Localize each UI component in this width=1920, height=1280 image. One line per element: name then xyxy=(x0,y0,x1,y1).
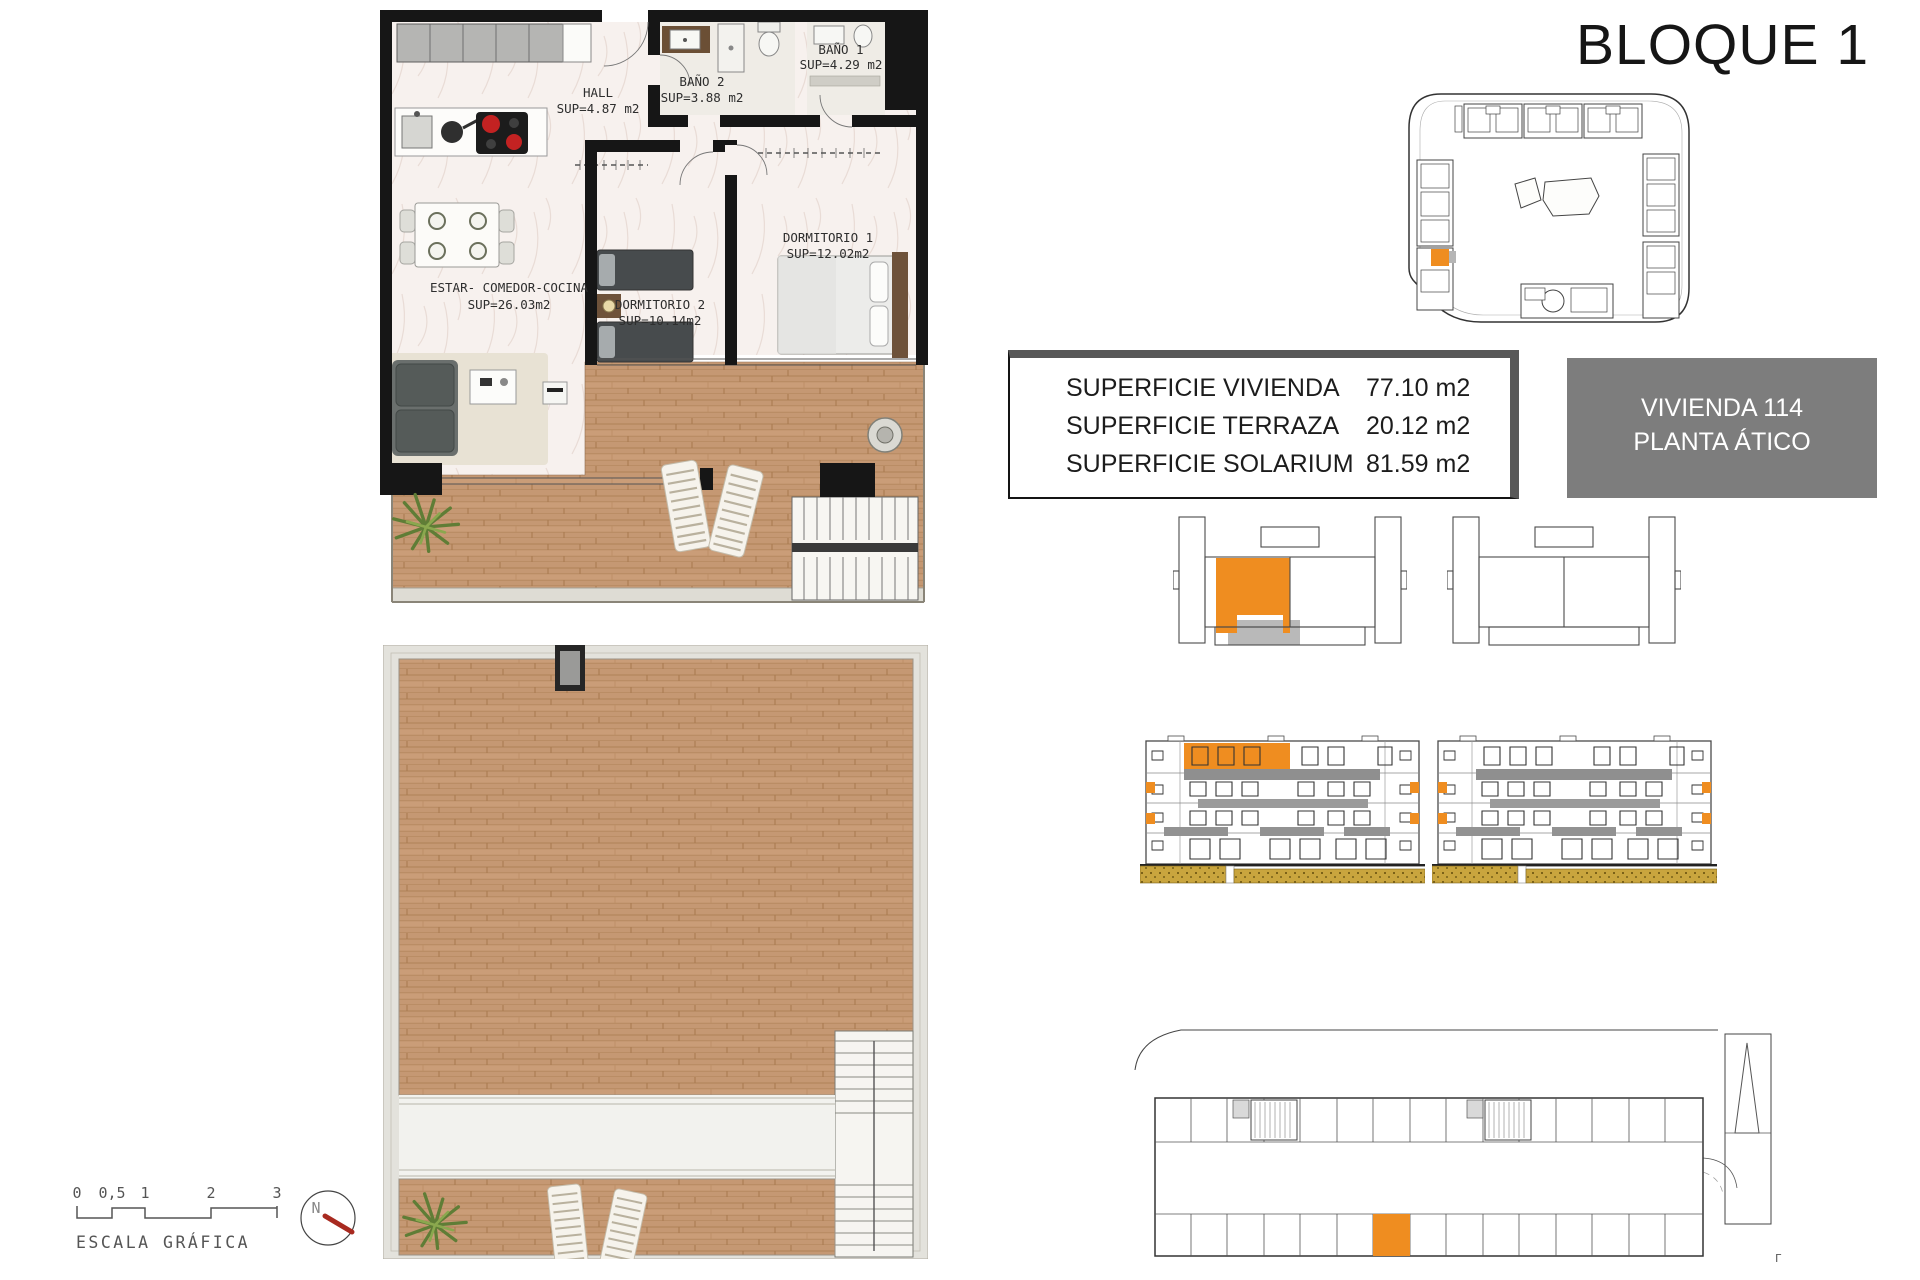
site-unit-gray xyxy=(1449,251,1456,263)
table-row: SUPERFICIE SOLARIUM81.59 m2 xyxy=(1066,445,1510,483)
estar-label: ESTAR- COMEDOR-COCINA xyxy=(430,280,589,295)
elevation-right xyxy=(1432,735,1717,887)
pan xyxy=(441,121,463,143)
north-compass: N xyxy=(301,1191,355,1245)
scale-tick: 1 xyxy=(140,1184,149,1202)
parking-plan: Γ xyxy=(1133,1018,1793,1268)
unit-identifier-box: VIVIENDA 114 PLANTA ÁTICO xyxy=(1567,358,1877,498)
coffee-table xyxy=(470,370,516,404)
site-buildings-top xyxy=(1455,104,1642,138)
scale-ticks: 0 0,5 1 2 3 xyxy=(72,1184,281,1202)
solarium-staircase xyxy=(835,1031,913,1257)
north-label: N xyxy=(311,1199,320,1217)
scale-tick: 0 xyxy=(72,1184,81,1202)
surface-label: SUPERFICIE VIVIENDA xyxy=(1066,369,1366,407)
plan-mark: Γ xyxy=(1775,1252,1782,1265)
hall-label: HALL xyxy=(583,85,613,100)
tv-bench xyxy=(543,382,567,404)
unit-key-right xyxy=(1447,513,1681,653)
table-row: SUPERFICIE VIVIENDA77.10 m2 xyxy=(1066,369,1510,407)
apartment-floor-plan: ESTAR- COMEDOR-COCINA SUP=26.03m2 HALL S… xyxy=(380,10,928,620)
estar-area: SUP=26.03m2 xyxy=(468,297,551,312)
bano2-label: BAÑO 2 xyxy=(679,74,724,89)
bano1-label: BAÑO 1 xyxy=(818,42,863,57)
elevation-left xyxy=(1140,735,1425,887)
terrace-staircase xyxy=(792,497,918,600)
scale-bar: 0 0,5 1 2 3 ESCALA GRÁFICA N xyxy=(55,1178,375,1273)
site-buildings-bottom xyxy=(1521,284,1613,318)
living-room-furniture xyxy=(388,353,567,465)
surface-value: 81.59 m2 xyxy=(1366,445,1470,483)
scale-bar-graphic xyxy=(77,1206,277,1218)
hall-area: SUP=4.87 m2 xyxy=(557,101,640,116)
solarium-deck xyxy=(399,659,913,1095)
roof-gap xyxy=(399,1095,835,1179)
round-table xyxy=(868,418,902,452)
scale-tick: 0,5 xyxy=(98,1184,125,1202)
kitchen-sink xyxy=(402,116,432,148)
unit-name: VIVIENDA 114 xyxy=(1567,358,1877,425)
dorm2-label: DORMITORIO 2 xyxy=(615,297,705,312)
bano1-area: SUP=4.29 m2 xyxy=(800,57,883,72)
site-buildings-left xyxy=(1417,160,1453,310)
surface-label: SUPERFICIE SOLARIUM xyxy=(1066,445,1366,483)
dorm1-area: SUP=12.02m2 xyxy=(787,246,870,261)
unit-floor: PLANTA ÁTICO xyxy=(1567,425,1877,459)
dining-set xyxy=(400,203,514,267)
surface-value: 77.10 m2 xyxy=(1366,369,1470,407)
hob xyxy=(476,112,528,154)
parking-building xyxy=(1155,1098,1703,1256)
dorm1-label: DORMITORIO 1 xyxy=(783,230,873,245)
highlighted-storage-unit xyxy=(1373,1214,1410,1256)
solarium-plan xyxy=(383,645,928,1259)
scale-tick: 3 xyxy=(272,1184,281,1202)
table-row: SUPERFICIE TERRAZA20.12 m2 xyxy=(1066,407,1510,445)
site-buildings-right xyxy=(1643,154,1679,318)
bano2-area: SUP=3.88 m2 xyxy=(661,90,744,105)
site-plan xyxy=(1403,88,1695,333)
headboard xyxy=(892,252,908,358)
surface-value: 20.12 m2 xyxy=(1366,407,1470,445)
plan-sheet: ESTAR- COMEDOR-COCINA SUP=26.03m2 HALL S… xyxy=(0,0,1920,1280)
skylight xyxy=(555,645,585,691)
surface-label: SUPERFICIE TERRAZA xyxy=(1066,407,1366,445)
page-title: BLOQUE 1 xyxy=(1576,12,1869,78)
surface-summary-table: SUPERFICIE VIVIENDA77.10 m2 SUPERFICIE T… xyxy=(1008,350,1519,499)
scale-tick: 2 xyxy=(206,1184,215,1202)
ramp xyxy=(1693,1034,1771,1224)
bedroom1-furniture xyxy=(778,252,908,358)
highlighted-unit-site xyxy=(1431,249,1449,266)
dorm2-area: SUP=10.14m2 xyxy=(619,313,702,328)
unit-key-left xyxy=(1173,513,1407,653)
scale-bar-label: ESCALA GRÁFICA xyxy=(76,1233,250,1252)
